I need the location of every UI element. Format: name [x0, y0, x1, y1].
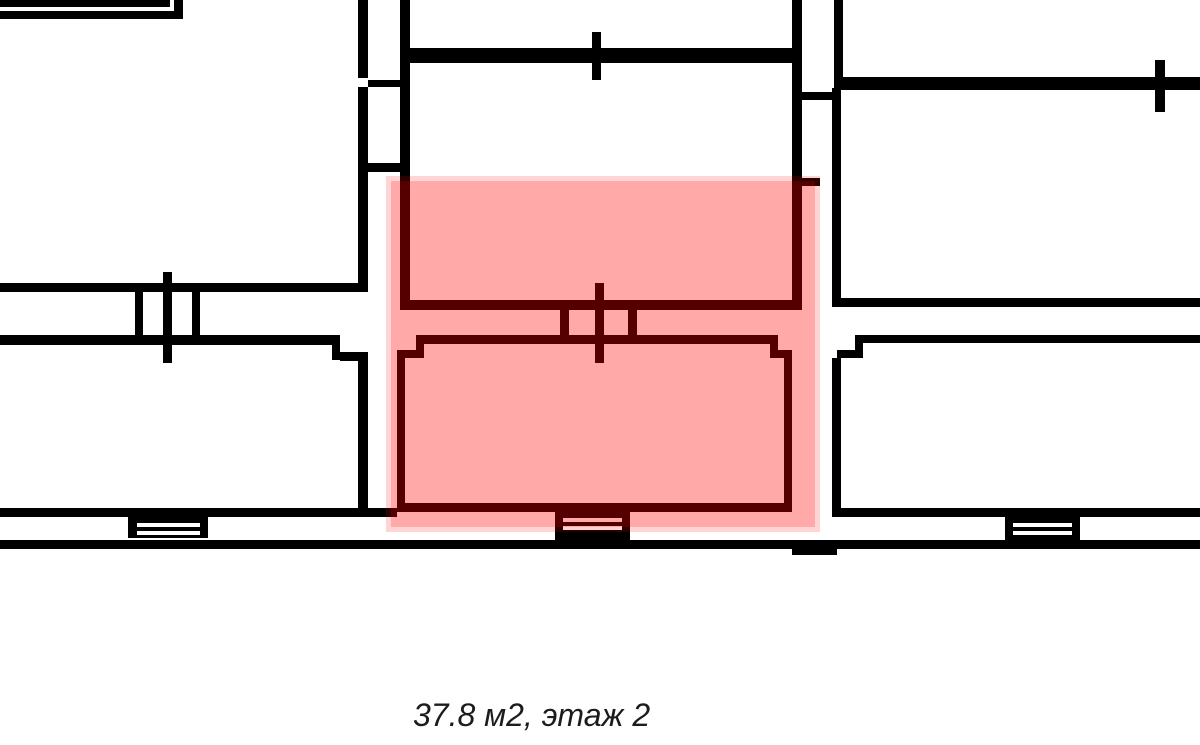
floor-plan: 37.8 м2, этаж 2 — [0, 0, 1200, 745]
wall-segment — [135, 292, 143, 335]
wall-segment — [863, 335, 1200, 343]
wall-segment — [792, 547, 837, 555]
wall-segment — [834, 0, 843, 90]
wall-segment — [358, 360, 368, 510]
window-slit — [1013, 531, 1072, 535]
wall-segment — [163, 272, 172, 363]
wall-segment — [832, 88, 841, 302]
wall-segment — [0, 508, 397, 517]
wall-segment — [340, 352, 368, 361]
wall-segment — [0, 11, 183, 19]
window-symbol — [1005, 516, 1080, 540]
window-slit — [137, 523, 200, 527]
window-slit — [137, 531, 200, 535]
wall-segment — [358, 0, 368, 78]
wall-segment — [802, 92, 834, 100]
apartment-area-floor-label: 37.8 м2, этаж 2 — [413, 697, 650, 733]
apartment-caption: 37.8 м2, этаж 2 — [413, 699, 650, 731]
wall-segment — [174, 0, 183, 19]
floor-plan-drawing — [0, 0, 1200, 560]
window-slit — [1013, 523, 1072, 527]
wall-segment — [834, 77, 1200, 90]
wall-segment — [358, 87, 368, 292]
wall-segment — [192, 292, 200, 335]
wall-segment — [368, 80, 400, 87]
wall-segment — [1155, 60, 1165, 112]
wall-segment — [332, 345, 340, 360]
selected-apartment-highlight-core[interactable] — [391, 181, 815, 527]
wall-segment — [0, 0, 170, 7]
wall-segment — [0, 540, 1200, 549]
wall-segment — [837, 350, 863, 358]
wall-segment — [592, 32, 601, 80]
wall-segment — [832, 358, 841, 517]
wall-segment — [832, 508, 1200, 517]
wall-segment — [832, 298, 1200, 307]
wall-segment — [0, 283, 368, 292]
